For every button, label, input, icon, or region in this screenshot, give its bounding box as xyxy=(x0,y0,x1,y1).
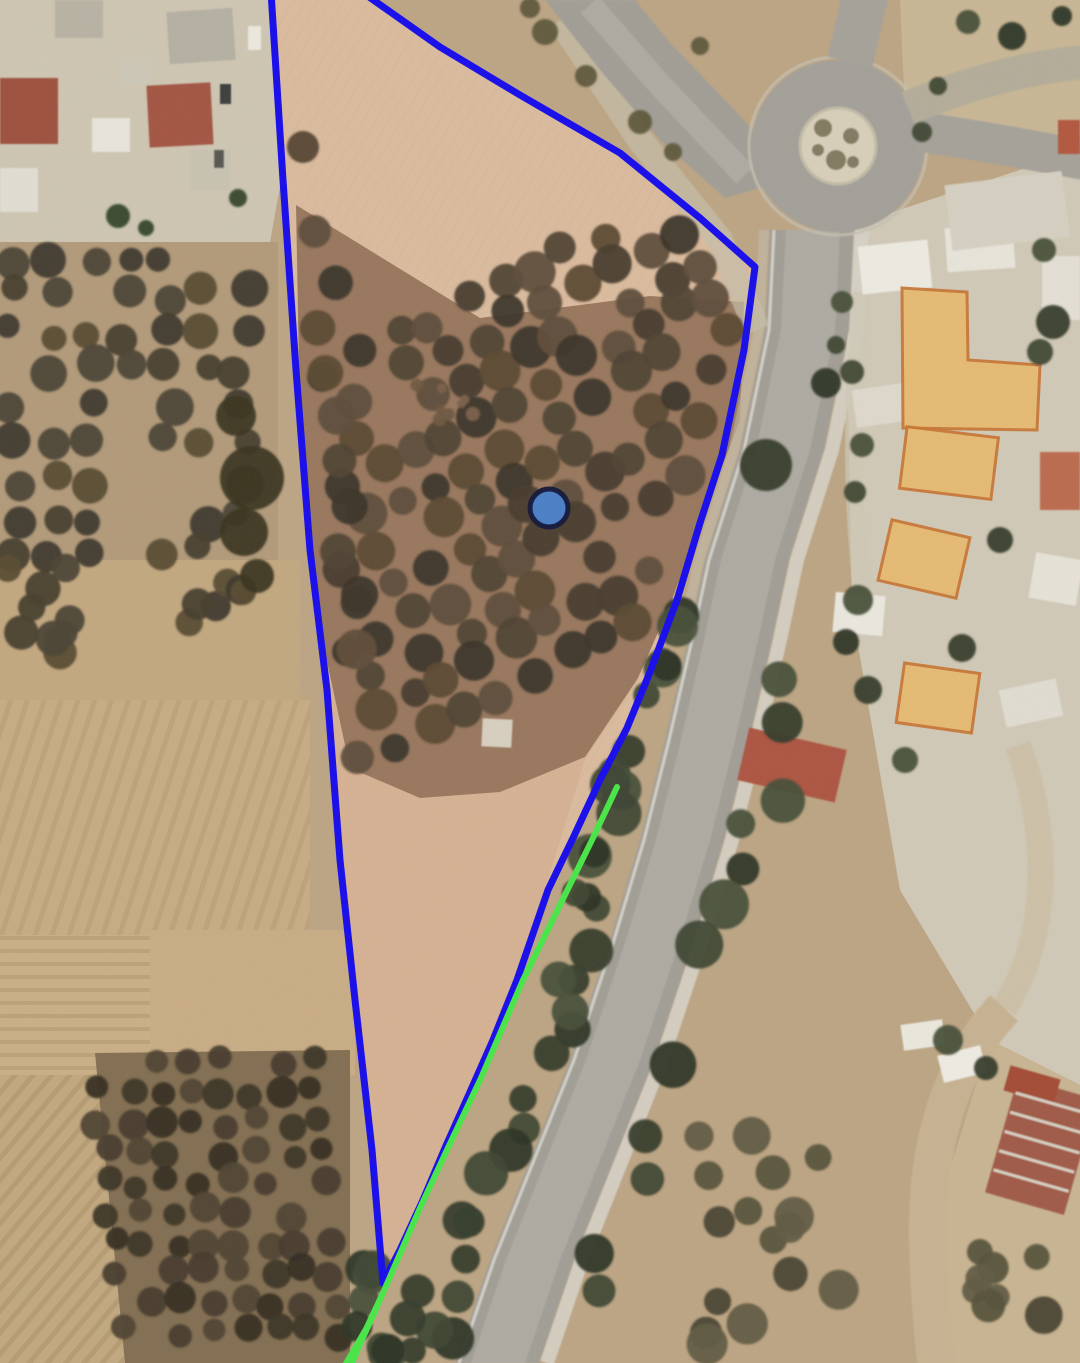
map-viewport[interactable] xyxy=(0,0,1080,1363)
satellite-map[interactable] xyxy=(0,0,1080,1363)
location-marker[interactable] xyxy=(530,489,568,527)
photo-grain xyxy=(0,0,1080,1363)
